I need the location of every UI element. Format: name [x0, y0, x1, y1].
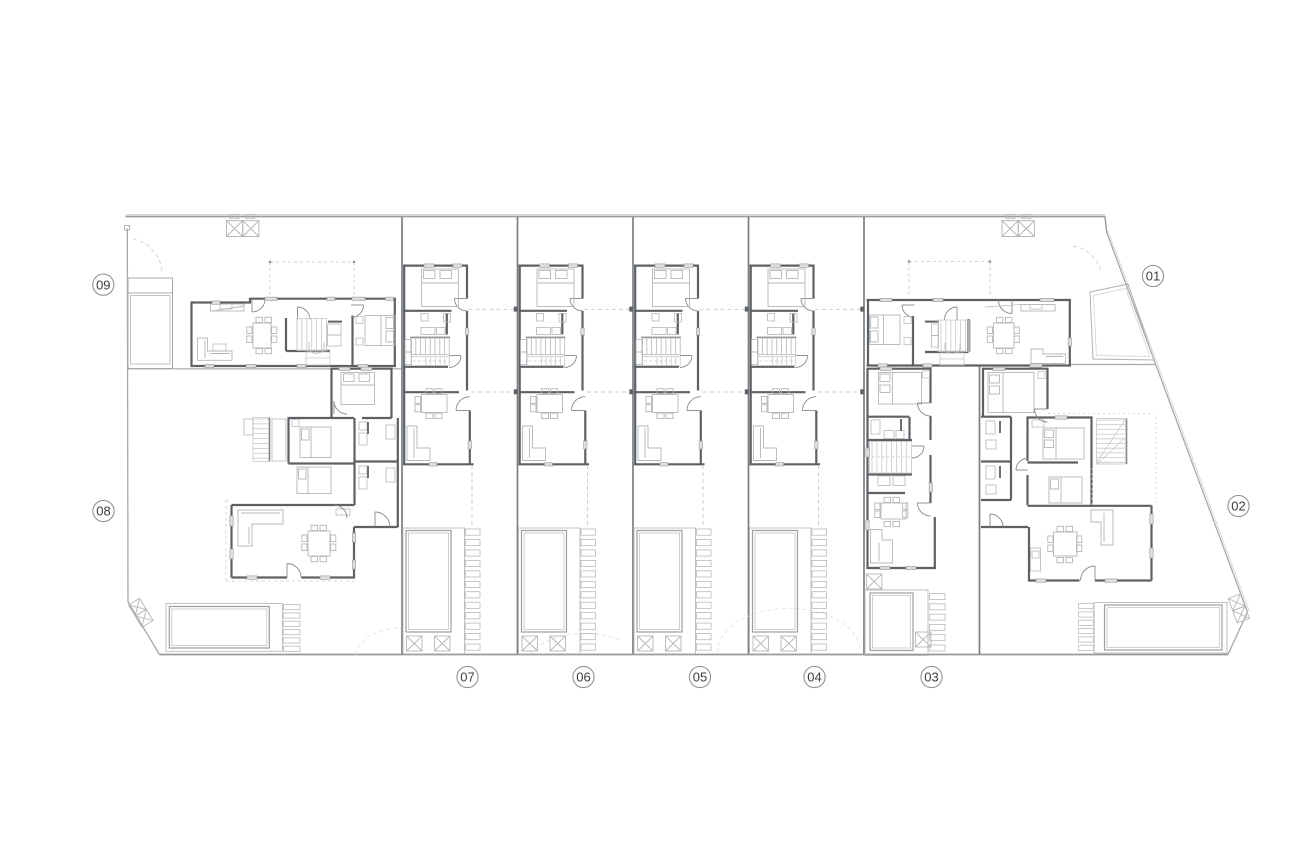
svg-text:05: 05	[693, 670, 707, 685]
svg-text:03: 03	[924, 670, 938, 685]
svg-text:01: 01	[1146, 269, 1160, 284]
svg-text:04: 04	[807, 670, 821, 685]
svg-text:06: 06	[576, 670, 590, 685]
svg-text:02: 02	[1231, 499, 1245, 514]
svg-text:08: 08	[96, 504, 110, 519]
svg-text:09: 09	[96, 277, 110, 292]
svg-text:07: 07	[460, 670, 474, 685]
